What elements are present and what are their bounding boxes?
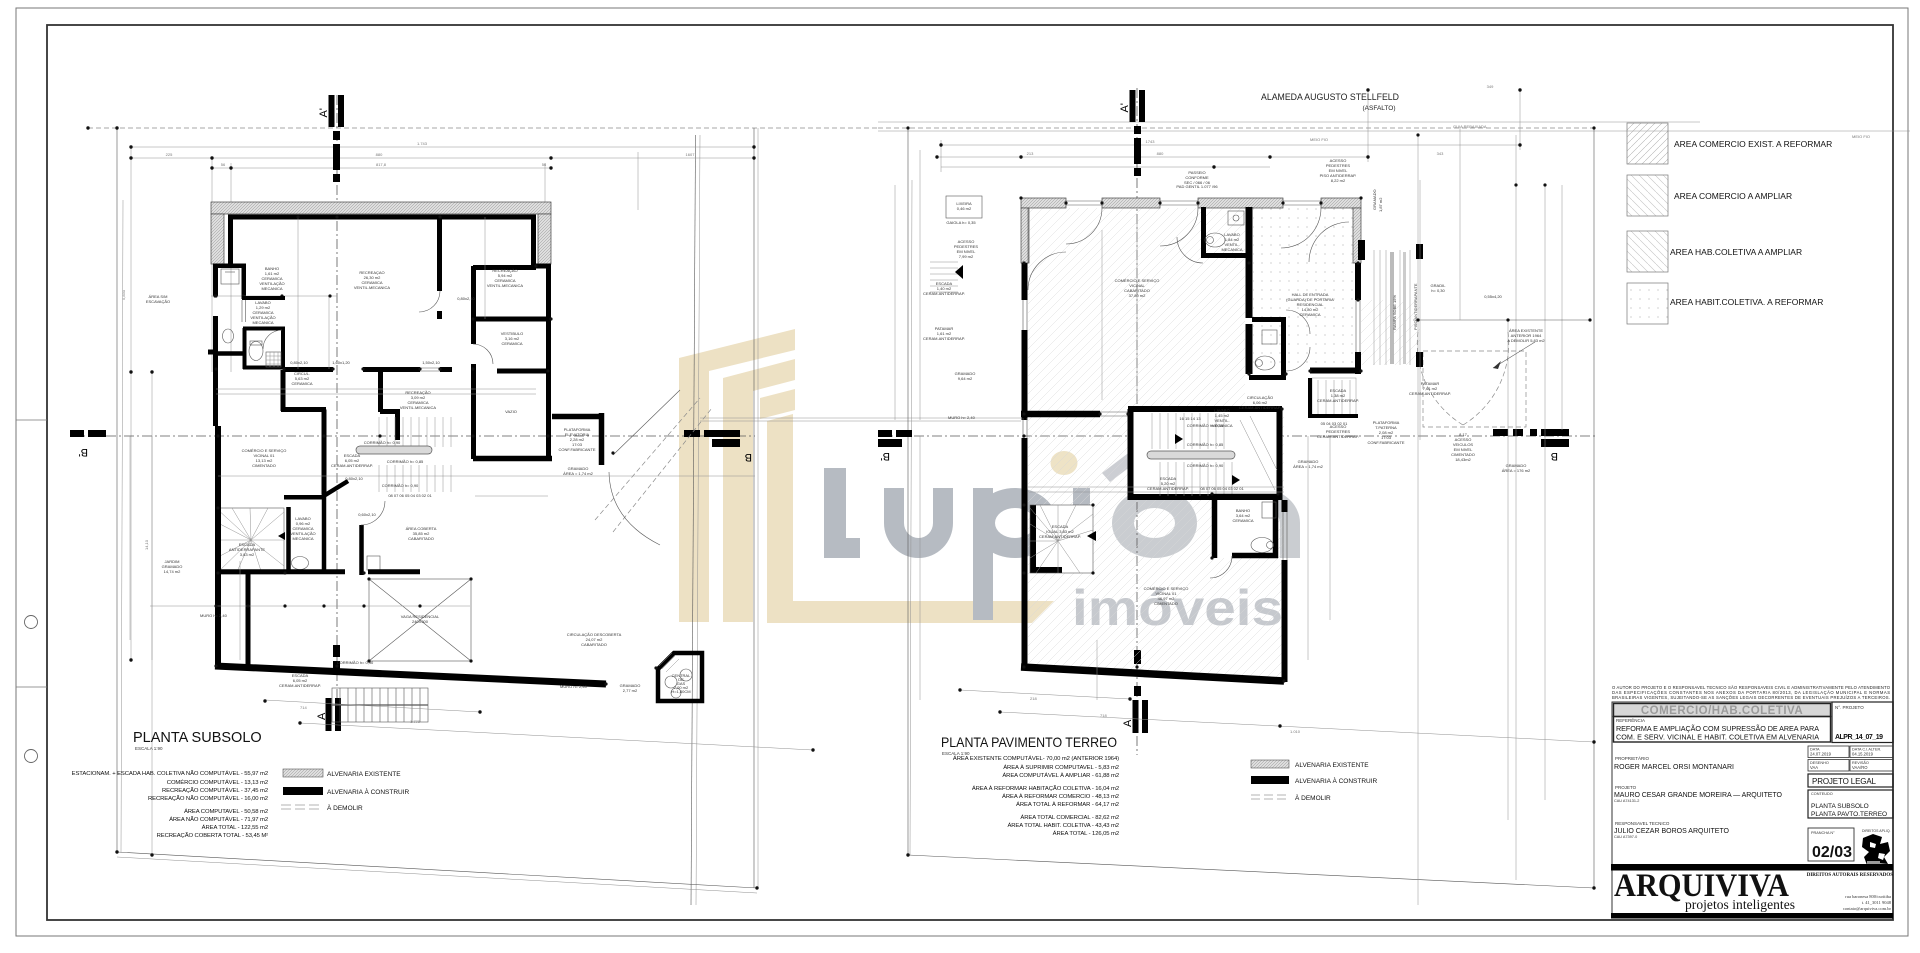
- svg-text:AREA HABIT.COLETIVA. A REFORMA: AREA HABIT.COLETIVA. A REFORMAR: [1670, 297, 1823, 307]
- svg-text:5,830: 5,830: [121, 289, 126, 300]
- svg-text:ALVENARIA À CONSTRUIR: ALVENARIA À CONSTRUIR: [327, 787, 410, 796]
- svg-text:GAIOLA h= 0,35: GAIOLA h= 0,35: [946, 220, 976, 225]
- svg-text:240X300: 240X300: [412, 619, 429, 624]
- svg-text:À DEMOLIR: À DEMOLIR: [327, 803, 363, 812]
- svg-text:AREA COMERCIO EXIST. A REFORMA: AREA COMERCIO EXIST. A REFORMAR: [1674, 139, 1832, 149]
- svg-text:ÁREA TOTAL HABIT. COLETIVA - 4: ÁREA TOTAL HABIT. COLETIVA - 43,43 m2: [1007, 822, 1119, 829]
- svg-text:VENTIL.MECANICA: VENTIL.MECANICA: [487, 283, 524, 288]
- svg-text:PAD GENTIL 1.077 /96: PAD GENTIL 1.077 /96: [1176, 184, 1218, 189]
- svg-text:PROPRIETÁRIO: PROPRIETÁRIO: [1615, 755, 1650, 761]
- svg-text:CAU A74131-2: CAU A74131-2: [1614, 799, 1639, 803]
- svg-text:RAMPA SOBE 15%: RAMPA SOBE 15%: [1392, 295, 1397, 330]
- svg-text:1.743: 1.743: [417, 141, 428, 146]
- svg-text:3,83 m2: 3,83 m2: [240, 552, 255, 557]
- svg-text:CONTEUDO: CONTEUDO: [1811, 792, 1833, 796]
- svg-text:MAURO CESAR GRANDE MOREIRA: MAURO CESAR GRANDE MOREIRA — ARQUITETO: [1614, 792, 1783, 799]
- svg-text:DIREITOS APLIQ.: DIREITOS APLIQ.: [1862, 829, 1891, 833]
- svg-text:A: A: [1122, 719, 1134, 727]
- svg-text:ESCAVAÇÃO: ESCAVAÇÃO: [146, 299, 170, 304]
- svg-text:ROGER MARCEL ORSI MONTANARI: ROGER MARCEL ORSI MONTANARI: [1614, 764, 1734, 771]
- svg-text:8,22 m2: 8,22 m2: [1331, 178, 1346, 183]
- svg-text:MURO h= 2,40: MURO h= 2,40: [560, 684, 588, 689]
- svg-text:04.15.2019: 04.15.2019: [1852, 752, 1874, 757]
- svg-text:ESTACIONAM. + ESCADA HAB. COLE: ESTACIONAM. + ESCADA HAB. COLETIVA NÃO C…: [72, 770, 268, 777]
- svg-text:MEIO FIO: MEIO FIO: [1852, 134, 1870, 139]
- svg-text:ÁREA = 1,74 m2: ÁREA = 1,74 m2: [563, 471, 593, 476]
- svg-text:PISO ANTIDERRAPANTE: PISO ANTIDERRAPANTE: [1413, 283, 1418, 330]
- svg-text:VENTIL.MECANICA: VENTIL.MECANICA: [400, 405, 437, 410]
- svg-text:ALPR_14_07_19: ALPR_14_07_19: [1835, 734, 1883, 741]
- svg-text:CORRIMÃO h= 0,90: CORRIMÃO h= 0,90: [1187, 463, 1224, 468]
- svg-text:225: 225: [166, 152, 173, 157]
- svg-text:0,80x2,10: 0,80x2,10: [290, 360, 308, 365]
- svg-text:14,10: 14,10: [144, 539, 149, 550]
- svg-text:ÁREA À SUPRIMIR COMPUTAVEL - 5: ÁREA À SUPRIMIR COMPUTAVEL - 5,83 m2: [1003, 764, 1119, 771]
- svg-text:0,80x2,10: 0,80x2,10: [345, 476, 363, 481]
- svg-text:MURO h= 2,40: MURO h= 2,40: [200, 613, 228, 618]
- svg-text:JULIO CEZAR BOROS ARQUITETO: JULIO CEZAR BOROS ARQUITETO: [1614, 828, 1730, 835]
- svg-text:714: 714: [300, 705, 307, 710]
- svg-text:CERAM.ANTIDERRAP.: CERAM.ANTIDERRAP.: [331, 463, 373, 468]
- svg-text:ALAMEDA AUGUSTO STELLFELD: ALAMEDA AUGUSTO STELLFELD: [1261, 92, 1399, 103]
- svg-text:BRASILEIRAS VIGENTES, SUJEITAN: BRASILEIRAS VIGENTES, SUJEITANDO-SE AS S…: [1612, 695, 1890, 700]
- svg-text:MECANICA: MECANICA: [1221, 247, 1242, 252]
- svg-text:213: 213: [1027, 151, 1034, 156]
- svg-text:CIMENTADO: CIMENTADO: [252, 463, 276, 468]
- svg-text:COM. E SERV. VICINAL E HA: COM. E SERV. VICINAL E HABIT. COLETIVA E…: [1616, 733, 1819, 742]
- svg-text:RECREAÇÃO COBERTA TOTAL - 53,4: RECREAÇÃO COBERTA TOTAL - 53,45 M²: [157, 832, 269, 839]
- svg-text:h= 0,30: h= 0,30: [1431, 288, 1445, 293]
- svg-text:B': B': [881, 450, 890, 462]
- svg-text:CERAM.ANTIDERRAP.: CERAM.ANTIDERRAP.: [1409, 391, 1451, 396]
- svg-text:A: A: [316, 712, 328, 720]
- svg-text:(ASFALTO): (ASFALTO): [1363, 105, 1396, 112]
- svg-text:B: B: [1551, 450, 1558, 462]
- svg-text:1.010: 1.010: [1290, 729, 1301, 734]
- svg-text:DIREITOS AUTORAIS RESERVADOS: DIREITOS AUTORAIS RESERVADOS: [1807, 873, 1893, 878]
- svg-text:1607: 1607: [686, 152, 696, 157]
- svg-text:CERAM.ANTIDERRAP.: CERAM.ANTIDERRAP.: [1317, 434, 1359, 439]
- svg-text:A DEMOLIR 5,83 m2: A DEMOLIR 5,83 m2: [1507, 338, 1545, 343]
- svg-text:56: 56: [221, 162, 226, 167]
- svg-text:817,8: 817,8: [376, 162, 387, 167]
- svg-text:N°. PROJETO: N°. PROJETO: [1835, 705, 1864, 710]
- svg-text:RECREAÇÃO NÃO COMPUTÁVEL - 16,: RECREAÇÃO NÃO COMPUTÁVEL - 16,00 m2: [148, 795, 268, 802]
- svg-text:MECANICA: MECANICA: [292, 536, 313, 541]
- svg-text:PLANTA PAVIMENTO TERREO: PLANTA PAVIMENTO TERREO: [941, 734, 1117, 750]
- svg-text:ÁREA TOTAL COMERCIAL - 82,62 m: ÁREA TOTAL COMERCIAL - 82,62 m2: [1020, 814, 1119, 821]
- svg-text:ÁREA COMPUTÁVEL À AMPLIAR - 61: ÁREA COMPUTÁVEL À AMPLIAR - 61,88 m2: [1002, 772, 1119, 779]
- svg-text:CERAM.ANTIDERRAP.: CERAM.ANTIDERRAP.: [279, 683, 321, 688]
- svg-text:H=1,80CM: H=1,80CM: [671, 689, 690, 694]
- svg-text:349: 349: [1487, 84, 1494, 89]
- svg-text:0,55x4,20: 0,55x4,20: [1484, 294, 1502, 299]
- svg-text:56: 56: [542, 162, 547, 167]
- svg-text:CERAM.ANTIDERRAP.: CERAM.ANTIDERRAP.: [1317, 398, 1359, 403]
- svg-text:MECANICA: MECANICA: [1211, 423, 1232, 428]
- svg-text:CABARITADO: CABARITADO: [581, 642, 607, 647]
- svg-text:ALVENARIA À CONSTRUIR: ALVENARIA À CONSTRUIR: [1295, 776, 1378, 785]
- svg-text:ÁREA TOTAL À REFORMAR - 64,17: ÁREA TOTAL À REFORMAR - 64,17 m2: [1016, 801, 1119, 808]
- svg-text:GUIA REBAIXADA: GUIA REBAIXADA: [1453, 124, 1487, 129]
- svg-text:0,60x2,10: 0,60x2,10: [358, 512, 376, 517]
- svg-text:1,50x2,10: 1,50x2,10: [422, 360, 440, 365]
- svg-text:A': A': [1119, 103, 1131, 112]
- svg-text:ÁREA TOTAL - 122,55 m2: ÁREA TOTAL - 122,55 m2: [202, 824, 268, 831]
- svg-text:7,99 m2: 7,99 m2: [959, 254, 974, 259]
- svg-text:À DEMOLIR: À DEMOLIR: [1295, 793, 1331, 802]
- svg-text:343: 343: [1437, 151, 1444, 156]
- svg-text:VAA/RO: VAA/RO: [1852, 765, 1868, 770]
- svg-text:ÁREA = 176 m2: ÁREA = 176 m2: [1502, 468, 1531, 473]
- svg-text:1743: 1743: [1146, 139, 1156, 144]
- svg-text:COMERCIO/HAB.COLETIVA: COMERCIO/HAB.COLETIVA: [1641, 705, 1803, 717]
- svg-text:CERAMICA: CERAMICA: [501, 341, 522, 346]
- svg-text:AREA COMERCIO A AMPLIAR: AREA COMERCIO A AMPLIAR: [1674, 191, 1792, 201]
- svg-text:AREA HAB.COLETIVA A AMPLIAR: AREA HAB.COLETIVA A AMPLIAR: [1670, 247, 1802, 257]
- svg-text:ESCALA 1:90: ESCALA 1:90: [135, 746, 163, 751]
- svg-text:880: 880: [376, 152, 383, 157]
- svg-text:ALVENARIA EXISTENTE: ALVENARIA EXISTENTE: [327, 771, 401, 778]
- svg-text:0,80x2,10: 0,80x2,10: [457, 296, 475, 301]
- svg-text:1,87 m2: 1,87 m2: [1378, 197, 1383, 212]
- svg-text:CERAMICA: CERAMICA: [1232, 518, 1253, 523]
- svg-text:PROJETO: PROJETO: [1615, 785, 1637, 790]
- svg-text:CERAM.ANTIDERRAP.: CERAM.ANTIDERRAP.: [1239, 405, 1281, 410]
- svg-text:t. 41_3011 9048: t. 41_3011 9048: [1862, 900, 1892, 905]
- svg-text:1.770: 1.770: [410, 719, 421, 724]
- svg-text:718: 718: [1100, 713, 1107, 718]
- svg-text:ÁREA EXISTENTE COMPUTÁVEL- 70,: ÁREA EXISTENTE COMPUTÁVEL- 70,00 m2 (ANT…: [953, 755, 1119, 762]
- svg-text:RECREAÇÃO COMPUTÁVEL - 37,45 m: RECREAÇÃO COMPUTÁVEL - 37,45 m2: [162, 787, 268, 794]
- svg-text:CAU A7397-0: CAU A7397-0: [1614, 835, 1637, 839]
- svg-text:14,74 m2: 14,74 m2: [164, 569, 181, 574]
- svg-text:contato@arquiviva.com.br: contato@arquiviva.com.br: [1843, 906, 1892, 911]
- svg-text:PROJETO LEGAL: PROJETO LEGAL: [1812, 777, 1877, 786]
- svg-text:MECANICA: MECANICA: [261, 286, 282, 291]
- svg-text:PLANTA PAVTO.TERREO: PLANTA PAVTO.TERREO: [1811, 811, 1887, 818]
- svg-text:MECANICA: MECANICA: [252, 320, 273, 325]
- svg-text:CORRIMÃO h= 0,85: CORRIMÃO h= 0,85: [1187, 442, 1224, 447]
- svg-text:CORRIMÃO h= 0,85: CORRIMÃO h= 0,85: [387, 459, 424, 464]
- svg-text:CERAMICA: CERAMICA: [1299, 312, 1320, 317]
- svg-text:PRANCHA N°: PRANCHA N°: [1811, 831, 1835, 835]
- svg-text:MEIO FIO: MEIO FIO: [1310, 137, 1328, 142]
- svg-text:CORRIMÃO h= 0,90: CORRIMÃO h= 0,90: [364, 440, 401, 445]
- svg-text:CONF.FABRICANTE: CONF.FABRICANTE: [558, 447, 595, 452]
- svg-text:08 07 06 05 04 03 02 01: 08 07 06 05 04 03 02 01: [388, 493, 432, 498]
- svg-text:16 15 14 13: 16 15 14 13: [1179, 416, 1201, 421]
- svg-text:ÁREA À REFORMAR HABITAÇÃO COLE: ÁREA À REFORMAR HABITAÇÃO COLETIVA - 16,…: [972, 785, 1119, 792]
- svg-text:ÁREA À REFORMAR COMERCIO - 48: ÁREA À REFORMAR COMERCIO - 48,13 m2: [1002, 793, 1119, 800]
- svg-text:COMÉRCIO COMPUTÁVEL - 13,13 m2: COMÉRCIO COMPUTÁVEL - 13,13 m2: [167, 779, 268, 786]
- svg-text:ÁREA COMPUTAVEL - 50,58 m2: ÁREA COMPUTAVEL - 50,58 m2: [184, 808, 268, 815]
- svg-text:CERAMICA: CERAMICA: [291, 381, 312, 386]
- svg-text:CERAM.ANTIDERRAP.: CERAM.ANTIDERRAP.: [1039, 534, 1081, 539]
- svg-text:rua baronesa 800/curitiba: rua baronesa 800/curitiba: [1845, 894, 1891, 899]
- svg-text:9,64 m2: 9,64 m2: [958, 376, 973, 381]
- svg-text:ALVENARIA EXISTENTE: ALVENARIA EXISTENTE: [1295, 762, 1369, 769]
- svg-text:02/03: 02/03: [1812, 844, 1852, 861]
- svg-text:MURO h= 2,40: MURO h= 2,40: [948, 415, 976, 420]
- svg-text:218: 218: [1030, 696, 1037, 701]
- svg-text:CORRIMÃO h= 0,90: CORRIMÃO h= 0,90: [382, 483, 419, 488]
- svg-text:24.07.2019: 24.07.2019: [1810, 752, 1832, 757]
- svg-text:B: B: [745, 451, 752, 463]
- svg-text:projetos inteligentes: projetos inteligentes: [1685, 897, 1795, 912]
- svg-text:CERAM.ANTIDERRAP.: CERAM.ANTIDERRAP.: [923, 336, 965, 341]
- svg-text:PLANTA SUBSOLO: PLANTA SUBSOLO: [133, 730, 262, 746]
- svg-text:18,43m2: 18,43m2: [1455, 457, 1471, 462]
- svg-text:PLANTA SUBSOLO: PLANTA SUBSOLO: [1811, 803, 1869, 810]
- svg-text:ÁREA NÃO COMPUTÁVEL - 71,97 m2: ÁREA NÃO COMPUTÁVEL - 71,97 m2: [169, 816, 268, 823]
- svg-text:1,60x1,20: 1,60x1,20: [332, 360, 350, 365]
- svg-text:0,46 m2: 0,46 m2: [957, 206, 972, 211]
- svg-text:RESPONSAVEL TECNICO: RESPONSAVEL TECNICO: [1615, 821, 1670, 826]
- svg-text:REFERÊNCIA: REFERÊNCIA: [1616, 716, 1645, 723]
- svg-text:ÁREA TOTAL - 126,05 m2: ÁREA TOTAL - 126,05 m2: [1053, 830, 1119, 837]
- svg-text:GRAMADO: GRAMADO: [1372, 189, 1377, 210]
- svg-text:A': A': [318, 108, 330, 117]
- svg-text:VAA: VAA: [1810, 765, 1818, 770]
- svg-text:ÁREA = 1,74 m2: ÁREA = 1,74 m2: [1293, 464, 1323, 469]
- svg-text:VENTIL.MECANICA: VENTIL.MECANICA: [354, 285, 391, 290]
- svg-text:2,77 m2: 2,77 m2: [623, 688, 638, 693]
- svg-text:37,80 m2: 37,80 m2: [1129, 293, 1146, 298]
- svg-text:CONF.FABRICANTE: CONF.FABRICANTE: [1367, 440, 1404, 445]
- svg-text:880: 880: [1157, 151, 1164, 156]
- svg-text:CIMENTADO: CIMENTADO: [1154, 601, 1178, 606]
- svg-text:CABARITADO: CABARITADO: [408, 536, 434, 541]
- svg-text:B': B': [79, 446, 88, 458]
- svg-text:VAZIO: VAZIO: [505, 409, 517, 414]
